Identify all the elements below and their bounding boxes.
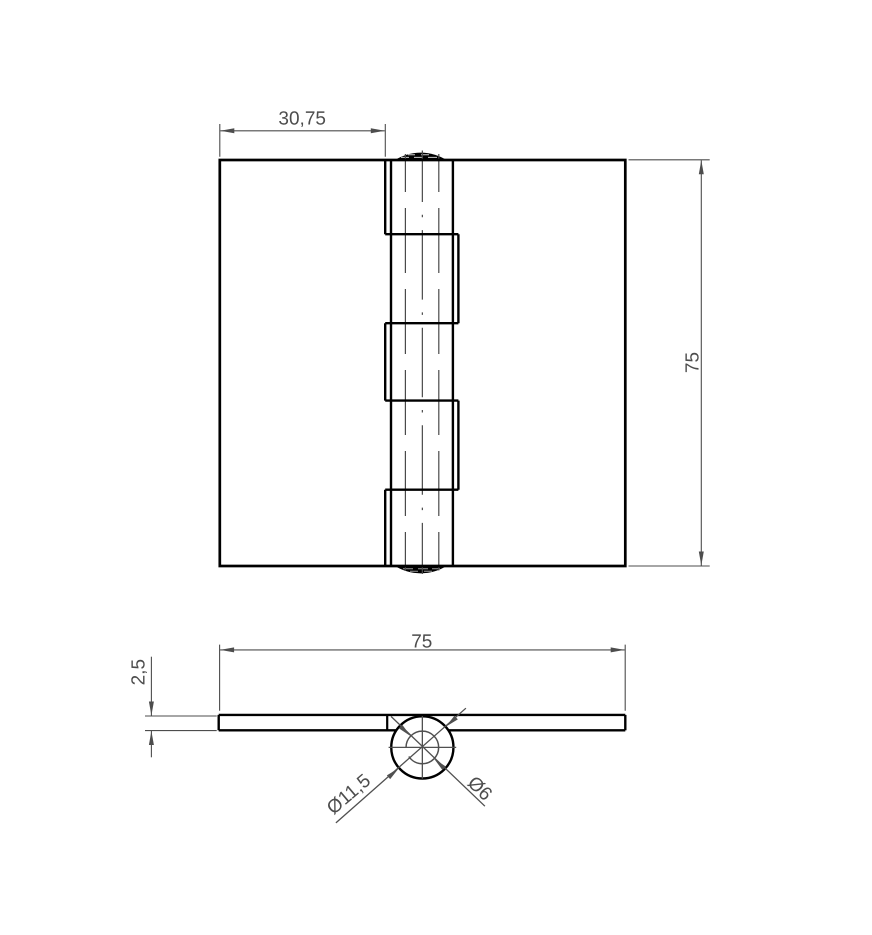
svg-text:75: 75 <box>683 352 704 373</box>
svg-text:30,75: 30,75 <box>278 109 326 130</box>
svg-text:2,5: 2,5 <box>128 659 149 685</box>
svg-text:75: 75 <box>411 631 432 652</box>
